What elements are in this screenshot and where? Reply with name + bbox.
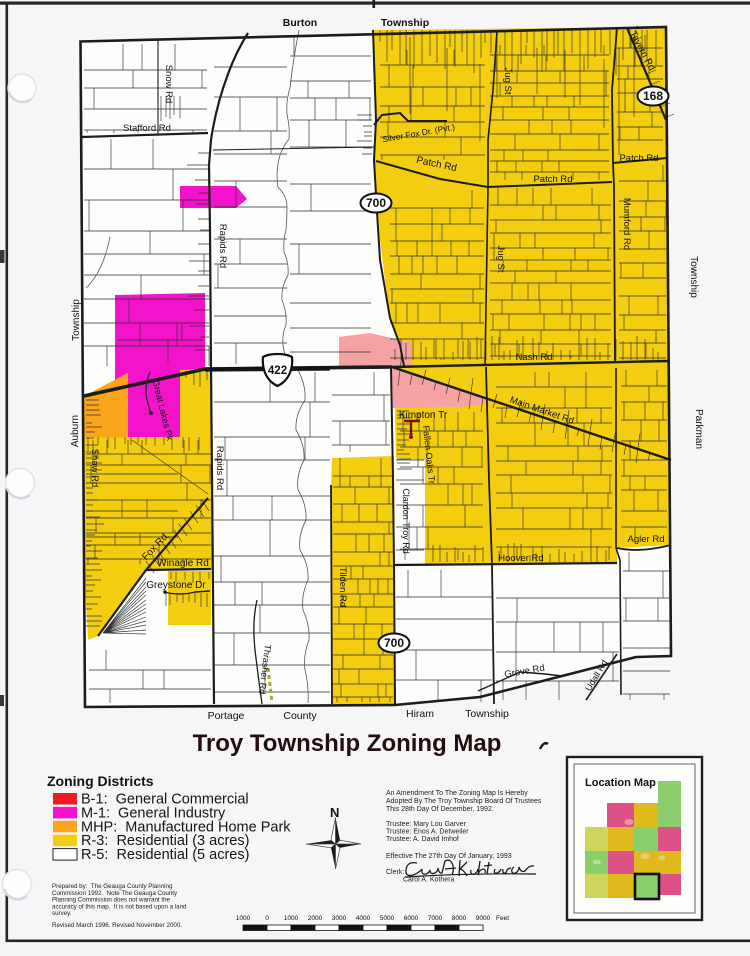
svg-text:7000: 7000 [428, 915, 443, 922]
svg-text:Troy Township Zoning Map: Troy Township Zoning Map [193, 730, 502, 757]
svg-text:9000: 9000 [476, 915, 491, 922]
svg-text:3000: 3000 [332, 915, 347, 922]
svg-text:Hiram: Hiram [406, 708, 434, 720]
svg-text:Feet: Feet [496, 915, 509, 922]
svg-text:0: 0 [265, 915, 269, 922]
svg-text:Burton: Burton [283, 17, 317, 29]
svg-text:County: County [283, 710, 317, 722]
svg-text:Township: Township [71, 299, 82, 341]
svg-text:Zoning Districts: Zoning Districts [47, 773, 154, 789]
svg-text:N: N [330, 805, 339, 820]
svg-text:Parkman: Parkman [693, 409, 704, 449]
svg-text:700: 700 [366, 196, 386, 210]
svg-text:Rapids Rd: Rapids Rd [217, 224, 228, 268]
svg-text:This 28th Day Of December, 199: This 28th Day Of December, 1992. [386, 806, 494, 813]
svg-text:Winagle Rd: Winagle Rd [157, 558, 209, 569]
svg-text:Trustee: A. David Imhof: Trustee: A. David Imhof [386, 836, 459, 843]
svg-text:Auburn: Auburn [70, 415, 81, 447]
svg-text:5000: 5000 [380, 915, 395, 922]
svg-text:Mumford Rd: Mumford Rd [621, 198, 632, 250]
svg-text:4000: 4000 [356, 915, 371, 922]
svg-text:Tilden Rd: Tilden Rd [337, 567, 348, 607]
svg-text:Location Map: Location Map [585, 777, 656, 789]
svg-text:Jug St: Jug St [502, 68, 513, 95]
svg-text:Township: Township [688, 256, 699, 298]
svg-text:2000: 2000 [308, 915, 323, 922]
svg-text:Effective The 27th Day Of Janu: Effective The 27th Day Of January, 1993 [386, 853, 512, 860]
svg-text:Clerk:: Clerk: [386, 869, 404, 876]
svg-text:6000: 6000 [404, 915, 419, 922]
svg-text:1000: 1000 [236, 915, 251, 922]
svg-text:8000: 8000 [452, 915, 467, 922]
svg-text:Portage: Portage [208, 710, 245, 722]
svg-text:survey.: survey. [52, 910, 72, 917]
svg-text:Shaw Rd: Shaw Rd [89, 449, 100, 488]
svg-text:R-5: Residential (5 acres): R-5: Residential (5 acres) [81, 847, 249, 863]
svg-text:Nash Rd: Nash Rd [516, 352, 553, 363]
svg-text:Adopted By The Troy Township B: Adopted By The Troy Township Board Of Tr… [386, 798, 542, 805]
svg-text:Hoover Rd: Hoover Rd [498, 553, 543, 564]
svg-text:Trustee: Enos A. Detweiler: Trustee: Enos A. Detweiler [386, 829, 469, 836]
svg-text:Carol A. Kothera: Carol A. Kothera [403, 877, 454, 884]
svg-text:Township: Township [381, 17, 429, 29]
svg-text:Stafford Rd: Stafford Rd [123, 123, 171, 134]
svg-text:700: 700 [384, 636, 404, 650]
svg-text:168: 168 [643, 89, 663, 103]
svg-text:Kimpton Tr: Kimpton Tr [399, 410, 448, 421]
svg-text:Snow Rd: Snow Rd [163, 65, 174, 104]
svg-text:Jug St: Jug St [495, 246, 506, 273]
svg-text:Agler Rd: Agler Rd [628, 534, 665, 545]
svg-text:422: 422 [268, 365, 287, 377]
svg-text:accuracy of this map. It is n: accuracy of this map. It is not based up… [52, 903, 187, 910]
svg-text:Patch Rd: Patch Rd [619, 153, 658, 164]
svg-text:Rapids Rd: Rapids Rd [214, 446, 225, 490]
svg-text:1000: 1000 [284, 915, 299, 922]
svg-text:Revised March 1996. Revised No: Revised March 1996. Revised November 200… [52, 922, 182, 929]
svg-text:Trustee: Mary Lou Garver: Trustee: Mary Lou Garver [386, 821, 467, 828]
svg-text:Patch Rd: Patch Rd [533, 174, 572, 185]
svg-text:Greystone Dr: Greystone Dr [146, 580, 206, 591]
svg-text:An Amendment To The Zoning Map: An Amendment To The Zoning Map Is Hereby [386, 790, 528, 797]
svg-text:Clardon Troy Rd: Clardon Troy Rd [401, 488, 411, 554]
svg-text:Township: Township [465, 708, 509, 720]
